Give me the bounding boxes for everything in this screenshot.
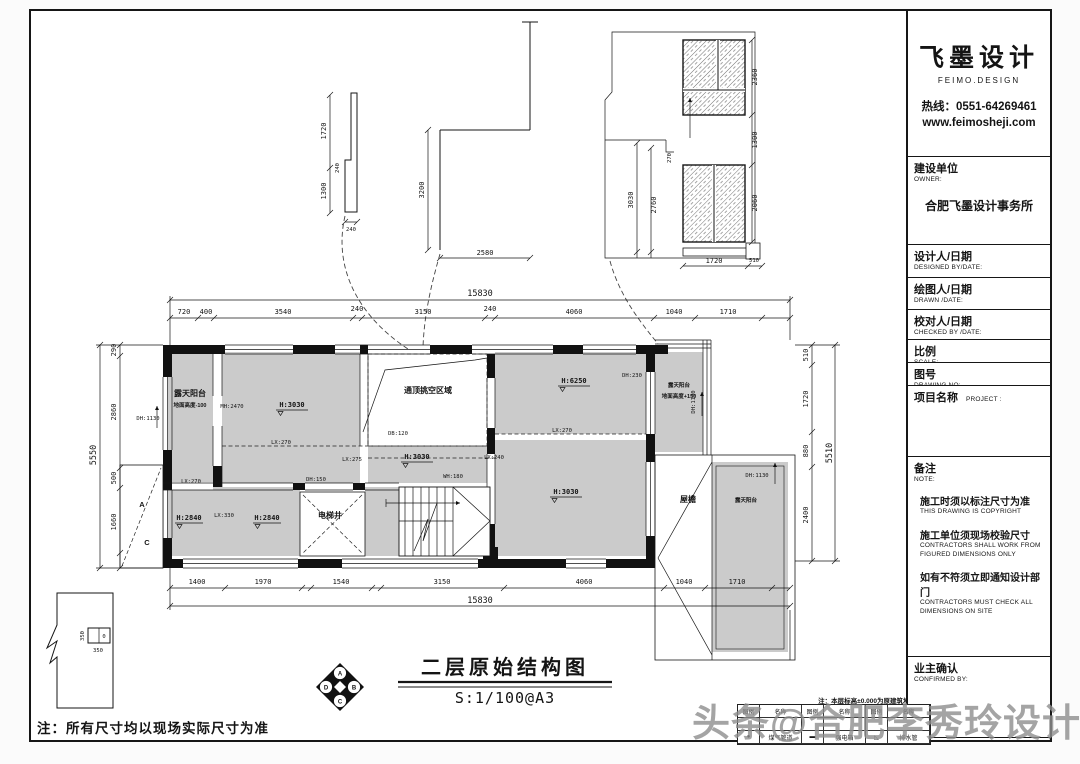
detail-c-dim: 1720 [706,257,723,265]
staircase [386,487,490,556]
room-label: 露天阳台 [174,388,206,398]
top-detail-b: 3200 2580 [418,22,538,261]
dim-label: 1040 [666,308,683,316]
note-cn: 如有不符须立即通知设计部门 [920,569,1044,599]
brand-section: 飞墨设计 FEIMO.DESIGN 热线：0551-64269461 www.f… [908,11,1050,157]
owner-section: 建设单位 OWNER: 合肥飞墨设计事务所 [908,157,1050,245]
dim-label: 1540 [333,578,350,586]
field-label-en: CONFIRMED BY: [914,676,1044,683]
tag: LX:275 [342,457,362,463]
detail-c-dim: 270 [667,153,673,163]
note-item: 施工时须以标注尺寸为准 THIS DRAWING IS COPYRIGHT [920,493,1044,517]
dim-label: 1660 [110,514,118,531]
detail-c-dim: 3030 [627,192,635,209]
dim-label: 15830 [467,596,493,606]
field-label: 设计人/日期 [914,248,1044,264]
room-label: H:2840 [254,514,279,522]
dim-label: 1400 [189,578,206,586]
detail-a-dim: 1720 [320,123,328,140]
note-item: 如有不符须立即通知设计部门 CONTRACTORS MUST CHECK ALL… [920,569,1044,617]
detail-b-dim: 2580 [477,249,494,257]
elevator-shaft [300,492,365,556]
dim-label: 15830 [467,289,493,299]
field-label-en: DRAWN /DATE: [914,297,1044,304]
dim-label: 400 [200,308,213,316]
dim-label: 240 [484,305,497,313]
room-label: 露天阳台 [668,381,691,389]
room-label: 屋檐 [680,494,696,504]
floor-plan-canvas: 1720 1300 240 240 3200 2580 [31,11,907,736]
compass-letter: D [324,686,329,692]
owner-label-en: OWNER: [914,176,1044,183]
dim-label: 1040 [676,578,693,586]
field-label-en: NOTE: [914,476,1044,483]
field-label: 业主确认 [914,660,1044,676]
drawing-scale: S:1/100@A3 [455,689,555,707]
tag: LX:270 [552,428,572,434]
field-label: 绘图人/日期 [914,281,1044,297]
drawn-by-section: 绘图人/日期 DRAWN /DATE: [908,278,1050,310]
sheet-frame: 1720 1300 240 240 3200 2580 [29,9,1052,742]
field-label: 备注 [914,460,1044,476]
watermark-text: 头条@合肥李秀玲设计师 [692,692,1080,747]
detail-c-dim: 510 [749,258,759,264]
dim-label: 1970 [255,578,272,586]
field-label: 图号 [914,366,1044,382]
note-en: CONTRACTORS SHALL WORK FROM FIGURED DIME… [920,542,1044,560]
detail-label: 0 [102,634,105,640]
dim-label: 3150 [434,578,451,586]
brand-logo: 飞墨设计 [914,38,1044,74]
dim-label: 720 [178,308,191,316]
drawing-no-section: 图号 DRAWING NO: [908,363,1050,386]
axis-label-c: C [144,538,150,547]
dim-label: 880 [802,445,810,458]
room-label: H:3030 [279,401,304,409]
left-annex: A C [120,465,163,568]
note-cn: 施工单位须现场校验尺寸 [920,527,1044,542]
room-label: 通顶挑空区域 [404,385,452,395]
tag: LX:270 [181,479,201,485]
note-en: CONTRACTORS MUST CHECK ALL DIMENSIONS ON… [920,599,1044,617]
tag: LX:240 [484,455,504,461]
room-label: H:3030 [404,453,429,461]
upper-window [683,40,745,115]
note-item: 施工单位须现场校验尺寸 CONTRACTORS SHALL WORK FROM … [920,527,1044,560]
top-detail-a: 1720 1300 240 240 [320,92,360,233]
tag: DH:150 [306,477,326,483]
room-label: H:6250 [561,377,586,385]
tag: DH:230 [622,373,642,379]
room-label: 露天阳台 [735,496,758,504]
floor-plan: A C 露天阳台 地面高度-100 H:3030 通顶挑空区域 H:6250 H… [89,289,840,660]
owner-value: 合肥飞墨设计事务所 [914,197,1044,214]
dim-label: 2400 [802,507,810,524]
notes-section: 备注 NOTE: 施工时须以标注尺寸为准 THIS DRAWING IS COP… [908,457,1050,657]
dim-label: 1710 [729,578,746,586]
void-outline [368,354,487,446]
dim-label: 1710 [720,308,737,316]
dimension-chain-right: 510 1720 880 2400 5510 [802,342,838,564]
tag: LX:270 [271,440,291,446]
dim-label: 2860 [110,404,118,421]
room-label: 地面高度-100 [173,401,206,409]
dim-label: 3150 [415,308,432,316]
detail-c-dim: 2760 [650,197,658,214]
checked-by-section: 校对人/日期 CHECKED BY /DATE: [908,310,1050,340]
project-section: 项目名称 PROJECT : [908,386,1050,457]
leader-lines [342,216,658,349]
scale-section: 比例 SCALE: [908,340,1050,363]
tag: DB:120 [388,431,408,437]
note-en: THIS DRAWING IS COPYRIGHT [920,508,1044,517]
detail-c-dim: 2360 [751,69,759,86]
window-elevation-detail: 2360 1300 2060 3030 2760 270 1720 510 [605,32,765,269]
detail-a-dim: 240 [346,227,356,233]
room-label: H:2840 [176,514,201,522]
dim-label: 1720 [802,391,810,408]
detail-c-dim: 2060 [751,195,759,212]
dim-label: 4060 [576,578,593,586]
dimension-chain-left: 290 2860 500 1660 5550 [89,342,123,571]
compass-letter: C [338,700,343,706]
page: 1720 1300 240 240 3200 2580 [0,0,1080,764]
field-label: 项目名称 [914,389,958,405]
detail-a-dim: 240 [335,163,341,173]
dim-label: 290 [110,344,118,357]
field-label-en: CHECKED BY /DATE: [914,329,1044,336]
dim-label: 500 [110,472,118,485]
field-label: 比例 [914,343,1044,359]
compass-letter: A [338,672,343,678]
detail-c-dim: 1300 [751,132,759,149]
site-dimension-note: 注：所有尺寸均以现场实际尺寸为准 [37,717,269,737]
room-label: H:3030 [553,488,578,496]
room-label: 电梯井 [318,510,342,520]
detail-a-dim: 1300 [320,183,328,200]
tag: LX:330 [214,513,234,519]
tag: MH:2470 [220,404,243,410]
field-label-en: DESIGNED BY/DATE: [914,264,1044,271]
designed-by-section: 设计人/日期 DESIGNED BY/DATE: [908,245,1050,278]
axis-label-a: A [139,500,145,509]
small-detail-sketch: 0 350 350 [47,593,113,708]
note-cn: 施工时须以标注尺寸为准 [920,493,1044,508]
field-label-en: PROJECT : [966,396,1002,403]
compass-letter: B [352,686,357,692]
brand-tagline: FEIMO.DESIGN [914,76,1044,85]
dimension-chain-top: 15830 720 400 3540 240 3150 240 4060 104… [167,289,793,321]
drawing-title: 二层原始结构图 [421,655,589,679]
drawing-title-group: 二层原始结构图 S:1/100@A3 [398,655,612,707]
dim-label: 510 [802,349,810,362]
tag: DH:1130 [136,416,159,422]
tag: DH:1130 [745,473,768,479]
dim-label: 5510 [825,443,835,463]
tag: DH:1130 [691,390,697,413]
title-block: 飞墨设计 FEIMO.DESIGN 热线：0551-64269461 www.f… [906,11,1050,740]
compass-icon: A B C D [316,663,364,711]
tag: WH:180 [443,474,463,480]
dimension-chain-bottom: 1400 1970 1540 3150 4060 1040 1710 15830 [167,578,793,609]
dim-label: 3540 [275,308,292,316]
dim-label: 240 [351,305,364,313]
detail-dim: 350 [93,648,103,654]
detail-b-dim: 3200 [418,182,426,199]
dim-label: 5550 [89,445,99,465]
owner-label: 建设单位 [914,160,1044,176]
brand-hotline: 热线：0551-64269461 [914,98,1044,114]
field-label: 校对人/日期 [914,313,1044,329]
dim-label: 4060 [566,308,583,316]
brand-website: www.feimosheji.com [914,117,1044,129]
detail-dim: 350 [80,631,86,641]
